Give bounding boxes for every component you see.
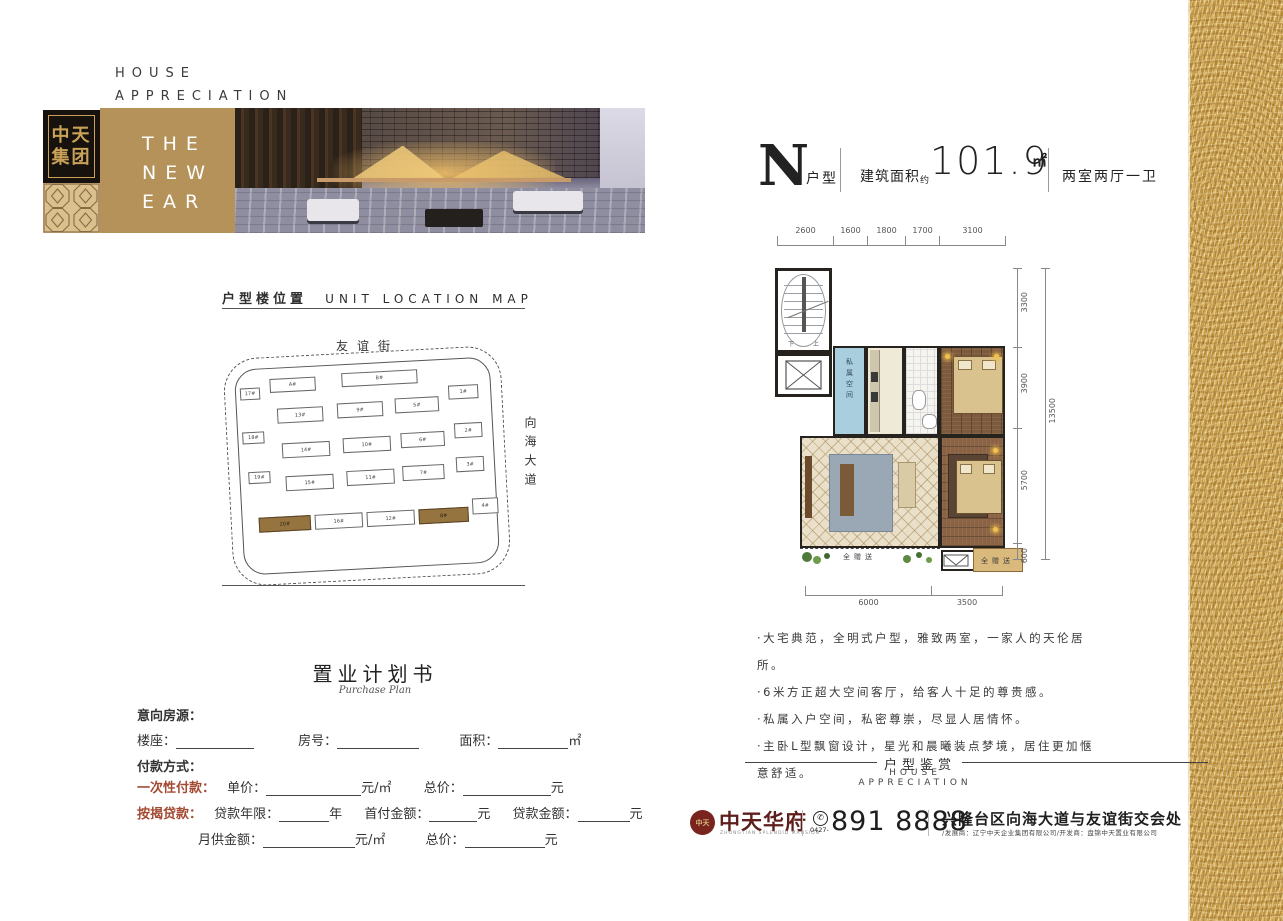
selling-point: ·大宅典范，全明式户型，雅致两室，一家人的天伦居所。 [757,625,1097,679]
pillow [958,360,972,370]
lamp-icon [994,354,999,359]
brochure-page: HOUSE APPRECIATION 中天 集团 [0,0,1283,921]
logo-line1: 中天 [52,125,92,147]
dim-tick [1041,268,1050,269]
brand-subtitle: ZHONGTIAN SPLENDID MANSION [720,831,820,836]
lamp-icon [945,354,950,359]
bathroom [904,346,939,436]
divider-line-left [745,762,877,763]
loan-suffix: 元 [630,807,643,822]
total-suffix: 元 [551,781,564,796]
gift-area-label-right: 全赠送 [981,556,1014,566]
loan-amount-label: 贷款金额： [513,807,578,822]
map-building-6: 6# [400,431,445,448]
kitchen-counter [870,350,880,432]
down-payment-label: 首付金额： [364,807,429,822]
loan-years-suffix: 年 [329,807,342,822]
room-label: 房号： [298,734,337,749]
dim-label: 600 [1020,548,1029,563]
form-row-unit: 楼座： 房号： 面积：㎡ [137,730,581,749]
hero-photo [235,108,645,233]
dim-label: 3900 [1020,373,1029,393]
header-tagline: HOUSE APPRECIATION [115,62,293,108]
private-space-label: 私属空间 [845,358,855,402]
area-unit: ㎡ [1032,150,1047,171]
dim-label: 2600 [778,226,833,235]
form-row-onetime: 一次性付款： 单价：元/㎡ 总价：元 [137,777,564,796]
unit-price-label: 单价： [227,781,266,796]
floor-plan: 2600 1600 1800 1700 3100 下 上 私属空间 [755,218,1100,623]
loan-years-blank [279,808,329,822]
lattice-pattern-icon [43,183,100,233]
map-building-9: 9# [337,401,384,418]
mortgage-label: 按揭贷款： [137,807,202,822]
selling-point: ·私属入户空间，私密尊崇，尽显人居情怀。 [757,706,1097,733]
living-room [800,436,940,548]
bed [953,356,1003,414]
dim-label: 1600 [834,226,867,235]
dim-label: 3300 [1020,292,1029,312]
brand-logo-block: 中天 集团 [43,110,100,183]
bay-window-icon [943,554,969,567]
gold-banner: THE NEW EAR [100,108,235,233]
area-blank [498,735,568,749]
map-building-20: 20# [259,515,312,533]
footer-divider [928,810,929,836]
bedroom-secondary [939,346,1005,436]
payment-label: 付款方式： [137,756,202,775]
area-label: 建筑面积 [860,166,920,186]
form-row-monthly: 月供金额：元/㎡ 总价：元 [198,829,558,848]
hero-table [425,209,483,227]
dim-label: 1800 [868,226,905,235]
area-suffix: ㎡ [568,734,581,749]
dim-label: 5700 [1020,470,1029,490]
tagline-line1: HOUSE [115,62,293,85]
banner-line2: NEW [142,159,214,188]
site-map: 17#A#B#1#13#9#5#18#14#10#6#2#19#15#11#7#… [222,345,512,587]
area-value: 101.9 [930,139,1049,183]
form-row-mortgage: 按揭贷款： 贷款年限：年 首付金额：元 贷款金额：元 [137,803,643,822]
section-underline [222,585,525,586]
dim-tick [1013,543,1022,544]
map-building-15: 15# [285,474,334,491]
pillow [982,360,996,370]
lattice-ornament [43,183,100,233]
monthly-label: 月供金额： [198,833,263,848]
intent-label: 意向房源： [137,705,202,724]
pillow [960,464,972,474]
map-building-17: 17# [240,388,261,401]
header-underline [222,308,525,309]
logo-characters: 中天 集团 [43,110,100,183]
total-label: 总价： [424,781,463,796]
hero-sofa [513,191,583,211]
tv-cabinet [805,456,812,518]
building-label: 楼座： [137,734,176,749]
stair-divider [802,277,806,332]
gift-area-right: 全赠送 [973,548,1023,572]
elevator-icon [778,356,829,394]
dim-label: 1700 [906,226,939,235]
payment-text: 付款方式： [137,760,202,775]
map-building-5: 5# [395,396,440,413]
monthly-blank [263,834,355,848]
appreciation-en: HOUSE APPRECIATION [840,768,990,788]
gift-area-label-left: 全赠送 [843,552,876,562]
basin-icon [922,414,937,429]
dim-tick [1041,559,1050,560]
unit-price-suffix: 元/㎡ [361,781,391,796]
total2-blank [465,834,545,848]
private-entry-space: 私属空间 [833,346,866,436]
dining-table [898,462,916,508]
loan-years-label: 贷款年限： [214,807,279,822]
map-building-B: B# [341,369,418,387]
map-building-3: 3# [456,456,485,472]
lamp-icon [993,448,998,453]
down-suffix: 元 [477,807,490,822]
divider-line-right [962,762,1208,763]
bay-window [941,550,975,571]
brand-seal-icon: 中天 [690,810,715,835]
living-rug [829,454,893,532]
total2-label: 总价： [426,833,465,848]
monthly-suffix: 元/㎡ [355,833,385,848]
dim-label-total: 13500 [1048,398,1057,423]
rooms-label: 两室两厅一卫 [1062,166,1158,186]
area-label: 面积： [459,734,498,749]
map-building-16: 16# [314,512,363,529]
loan-amount-blank [578,808,630,822]
developers-note: /发展商：辽宁中天企业集团有限公司/开发商：盘锦中天置业有限公司 [942,827,1157,837]
hero-platform-edge [317,178,571,182]
title-divider [1048,148,1049,192]
phone-area-code: 0427- [810,826,829,834]
area-approx: 约 [920,173,929,186]
sofa [840,464,854,516]
stair-down-label: 下 [788,339,794,348]
dim-tick [1013,428,1022,429]
dim-line-right-outer [1045,268,1046,559]
map-building-10: 10# [343,436,392,453]
map-building-A: A# [269,377,316,393]
dim-tick [1013,268,1022,269]
street-label-right: 向海大道 [522,416,539,492]
map-building-11: 11# [346,469,395,486]
map-building-14: 14# [282,441,331,458]
unit-letter: N [758,138,809,194]
hero-sofa [307,199,359,221]
onetime-label: 一次性付款： [137,781,215,796]
dim-label: 3100 [940,226,1005,235]
dim-line-right-inner [1017,268,1018,559]
purchase-plan-title: 置业计划书 [290,658,460,687]
pillow [983,464,995,474]
phone-icon: ✆ [813,811,828,826]
location-title-cn: 户型楼位置 [222,292,307,307]
bed [956,460,1002,514]
stove-icon [871,372,878,382]
dim-chain-bottom: 6000 3500 [805,586,1003,596]
total2-suffix: 元 [545,833,558,848]
total-blank [463,782,551,796]
unit-price-blank [266,782,361,796]
map-building-4: 4# [472,497,499,514]
location-title-en: UNIT LOCATION MAP [325,292,533,306]
logo-line2: 集团 [52,147,92,169]
address: 兴隆台区向海大道与友谊街交会处 [942,808,1182,829]
kitchen [866,346,904,436]
dim-label: 6000 [806,598,931,607]
map-building-1: 1# [448,384,479,400]
gold-texture-strip [1188,0,1283,921]
banner-line3: EAR [142,188,214,217]
banner-line1: THE [142,130,214,159]
map-building-13: 13# [277,406,324,423]
map-building-7: 7# [402,464,445,481]
map-building-2: 2# [454,422,483,438]
elevator-shaft [775,353,832,397]
unit-letter-suffix: 户型 [806,168,838,188]
sink-icon [871,392,878,402]
building-blank [176,735,254,749]
toilet-icon [912,390,926,410]
dim-tick [1013,347,1022,348]
title-divider [840,148,841,192]
purchase-plan-subtitle: Purchase Plan [290,685,460,696]
tagline-line2: APPRECIATION [115,85,293,108]
plants-icon [802,552,812,562]
map-building-8: 8# [418,507,469,525]
map-building-12: 12# [366,510,415,527]
map-building-18: 18# [242,431,265,444]
stairwell: 下 上 [775,268,832,353]
room-blank [337,735,419,749]
lamp-icon [993,527,998,532]
dim-label: 3500 [932,598,1002,607]
intent-text: 意向房源： [137,709,202,724]
site-buildings: 17#A#B#1#13#9#5#18#14#10#6#2#19#15#11#7#… [222,345,512,587]
dim-chain-top: 2600 1600 1800 1700 3100 [777,236,1006,246]
stair-up-label: 上 [813,339,819,348]
bedroom-master [940,436,1005,548]
footer-divider [802,810,803,836]
selling-point: ·6米方正超大空间客厅，给客人十足的尊贵感。 [757,679,1097,706]
location-map-header: 户型楼位置 UNIT LOCATION MAP [222,288,533,307]
map-building-19: 19# [248,471,271,484]
down-payment-blank [429,808,477,822]
